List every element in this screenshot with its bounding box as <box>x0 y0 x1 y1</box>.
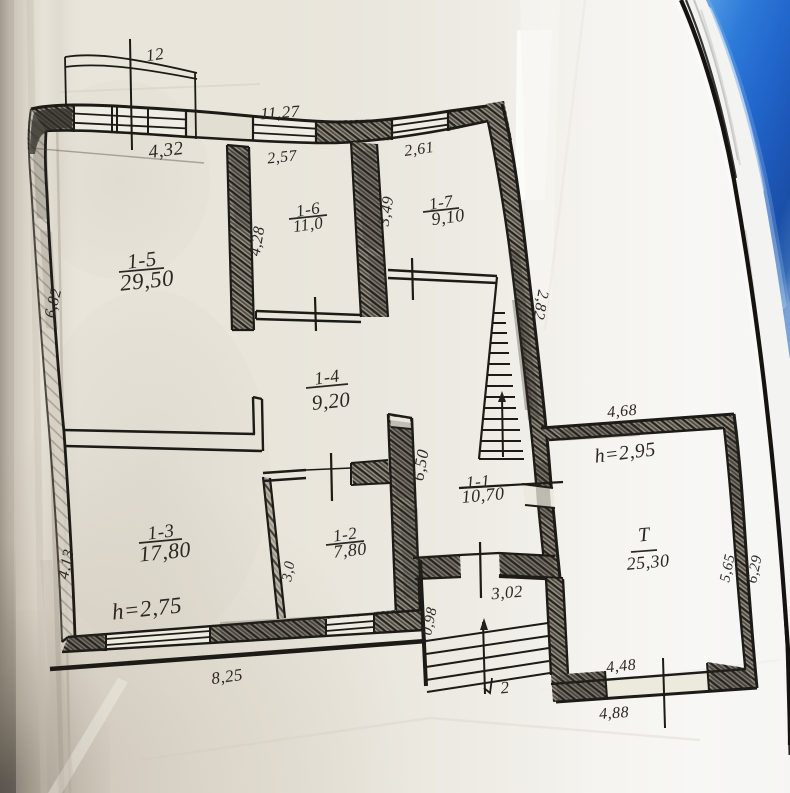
svg-text:2,57: 2,57 <box>266 147 298 167</box>
svg-text:4,88: 4,88 <box>599 704 630 723</box>
svg-text:4,48: 4,48 <box>605 656 637 676</box>
svg-text:9,20: 9,20 <box>310 387 351 415</box>
svg-text:4,68: 4,68 <box>606 402 637 422</box>
svg-text:3,02: 3,02 <box>489 582 523 604</box>
svg-text:7,80: 7,80 <box>332 538 367 561</box>
svg-text:25,30: 25,30 <box>626 550 671 574</box>
svg-text:12: 12 <box>145 44 165 65</box>
svg-text:10,70: 10,70 <box>461 483 506 507</box>
svg-text:4,32: 4,32 <box>147 138 185 163</box>
svg-text:11,27: 11,27 <box>260 102 302 124</box>
